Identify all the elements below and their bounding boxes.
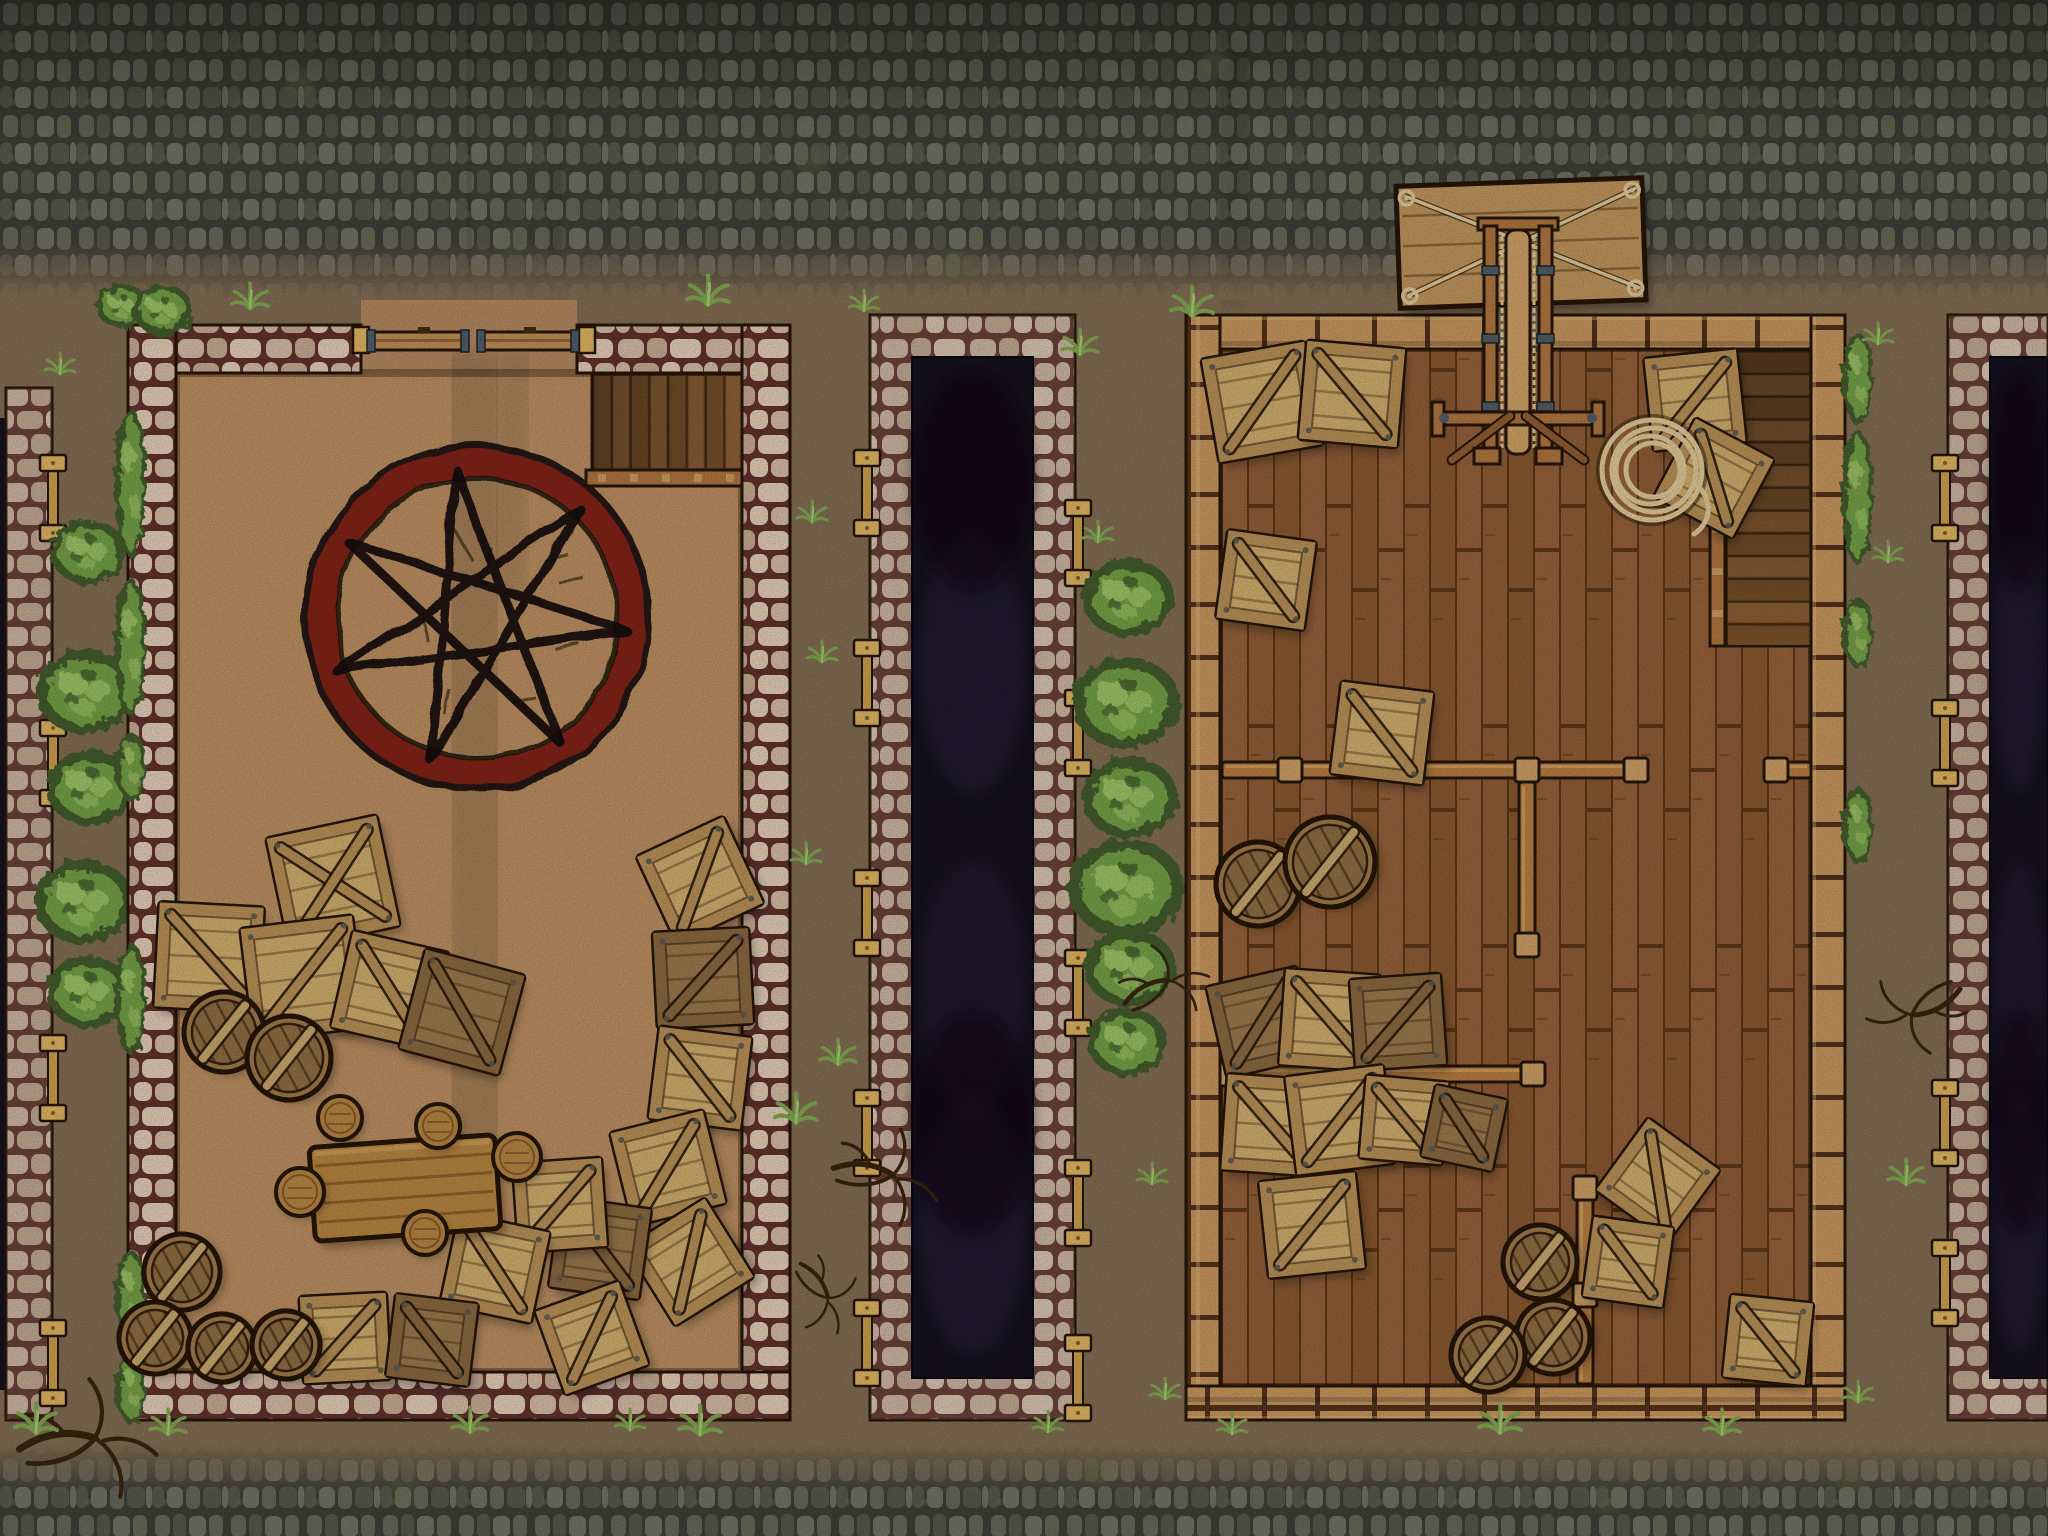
map-viewport bbox=[0, 0, 2048, 1536]
texture-grain bbox=[0, 0, 2048, 1536]
battle-map bbox=[0, 0, 2048, 1536]
